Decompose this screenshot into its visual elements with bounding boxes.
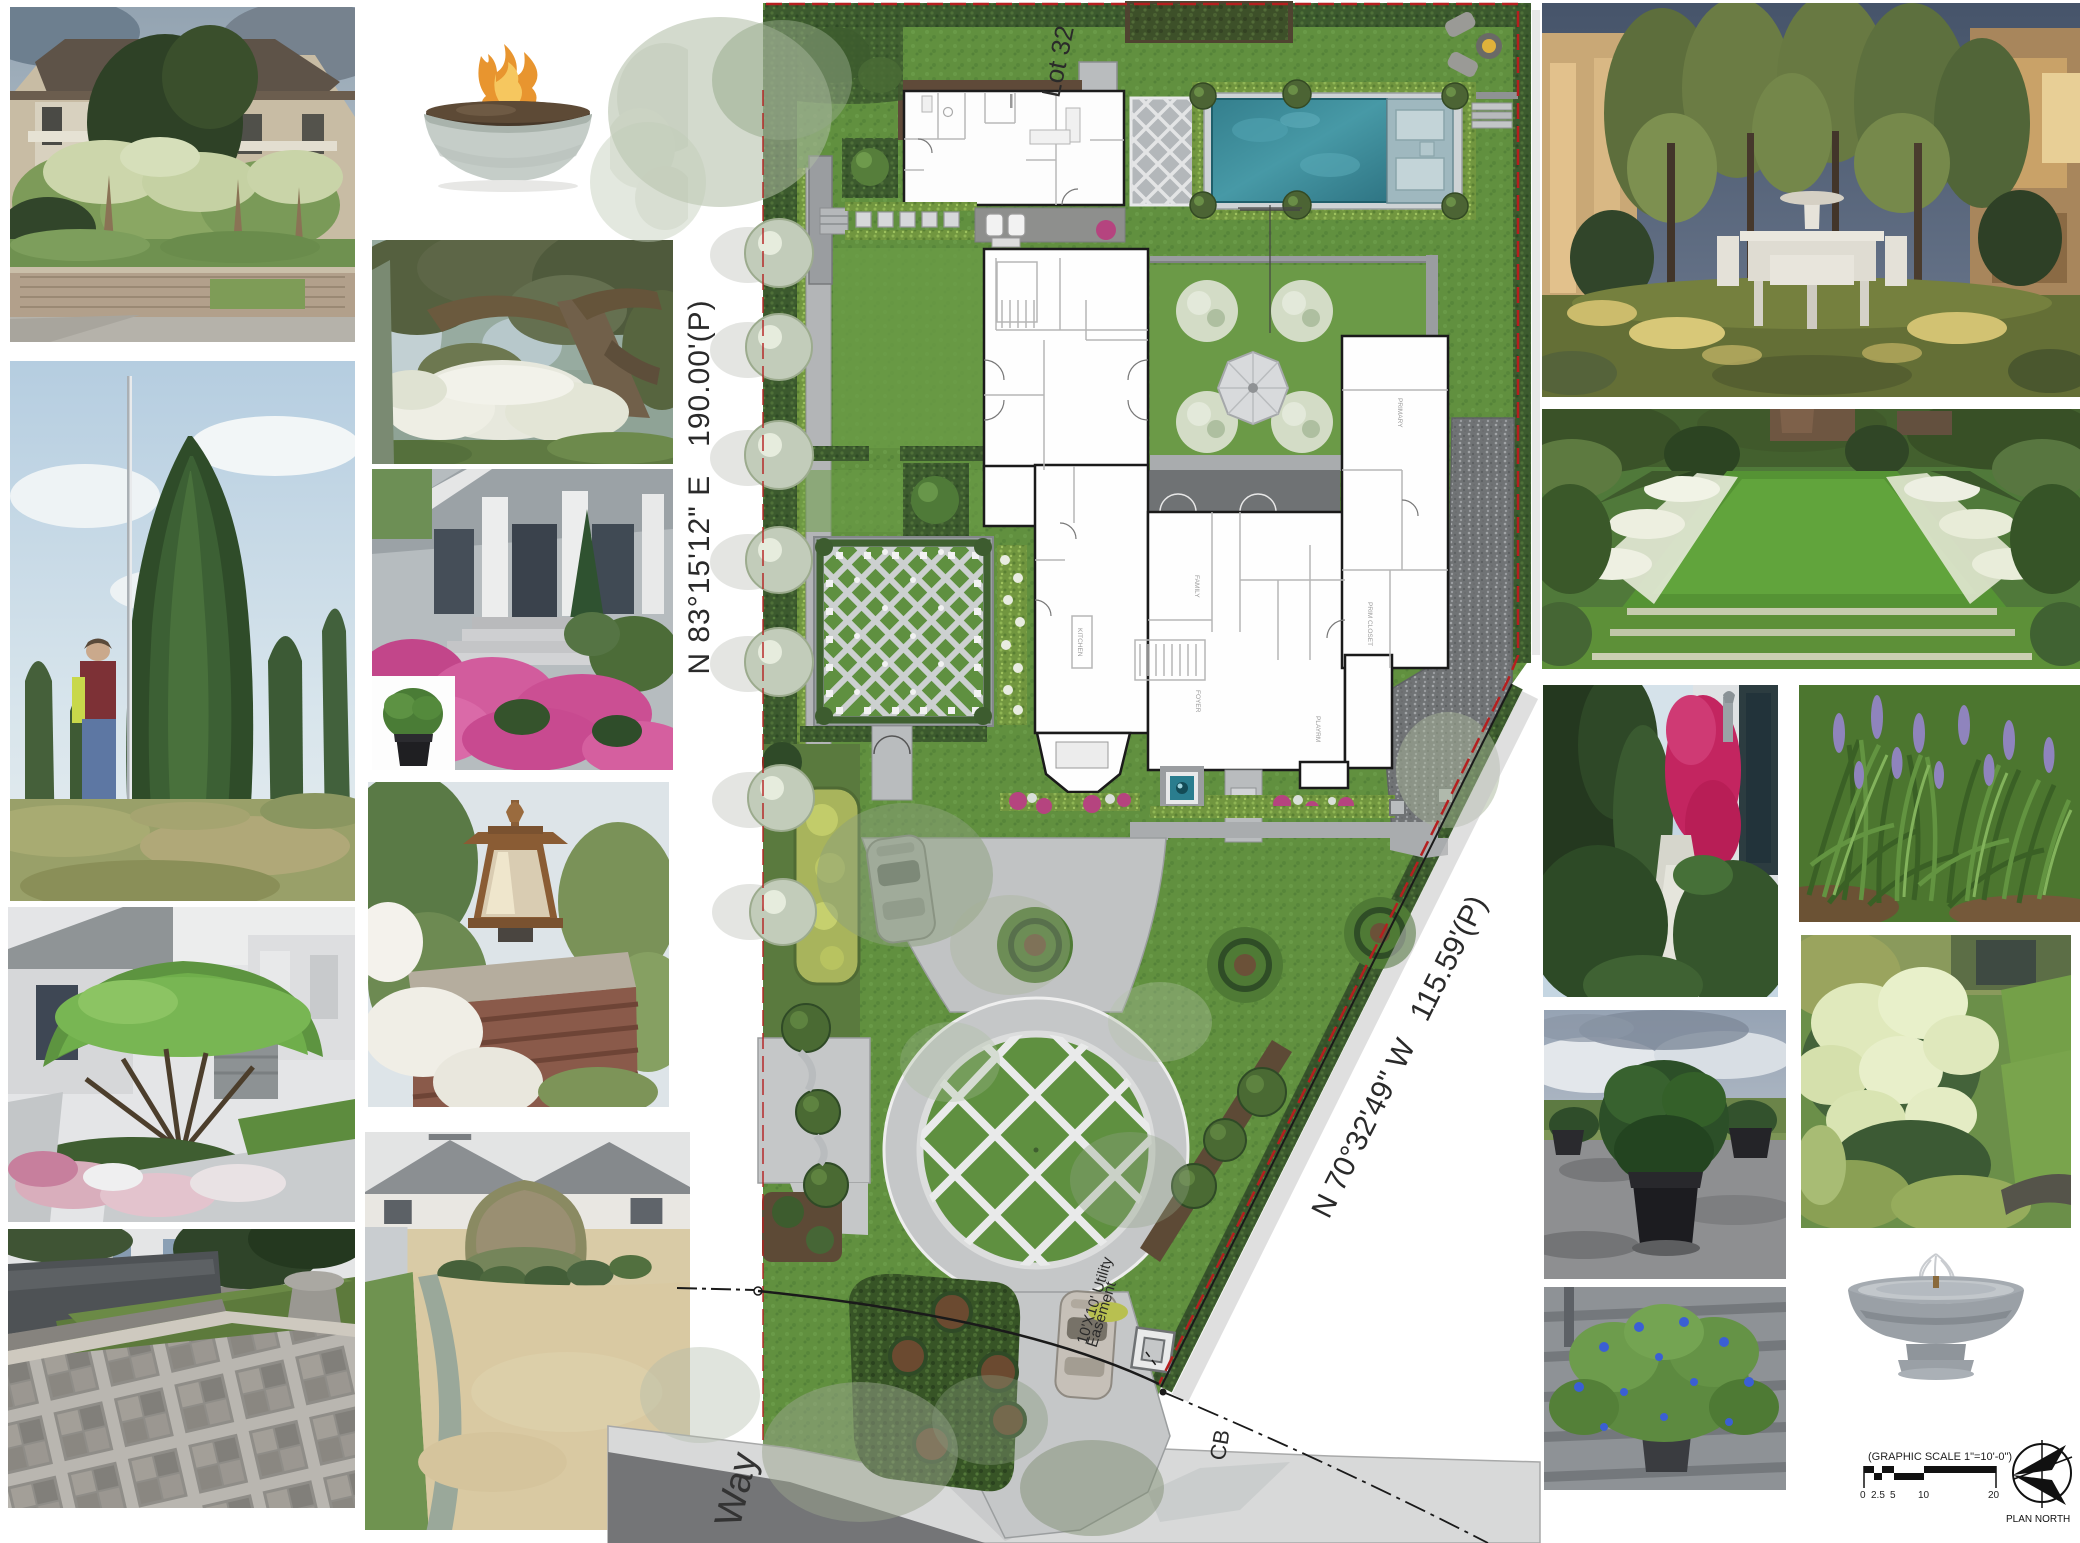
svg-text:FAMILY: FAMILY xyxy=(1193,575,1200,598)
svg-text:PRIMARY: PRIMARY xyxy=(1396,398,1403,428)
svg-text:PLAYRM: PLAYRM xyxy=(1314,716,1321,742)
svg-text:PRIM CLOSET: PRIM CLOSET xyxy=(1366,602,1373,646)
svg-text:FOYER: FOYER xyxy=(1194,690,1201,713)
svg-text:KITCHEN: KITCHEN xyxy=(1076,628,1083,657)
